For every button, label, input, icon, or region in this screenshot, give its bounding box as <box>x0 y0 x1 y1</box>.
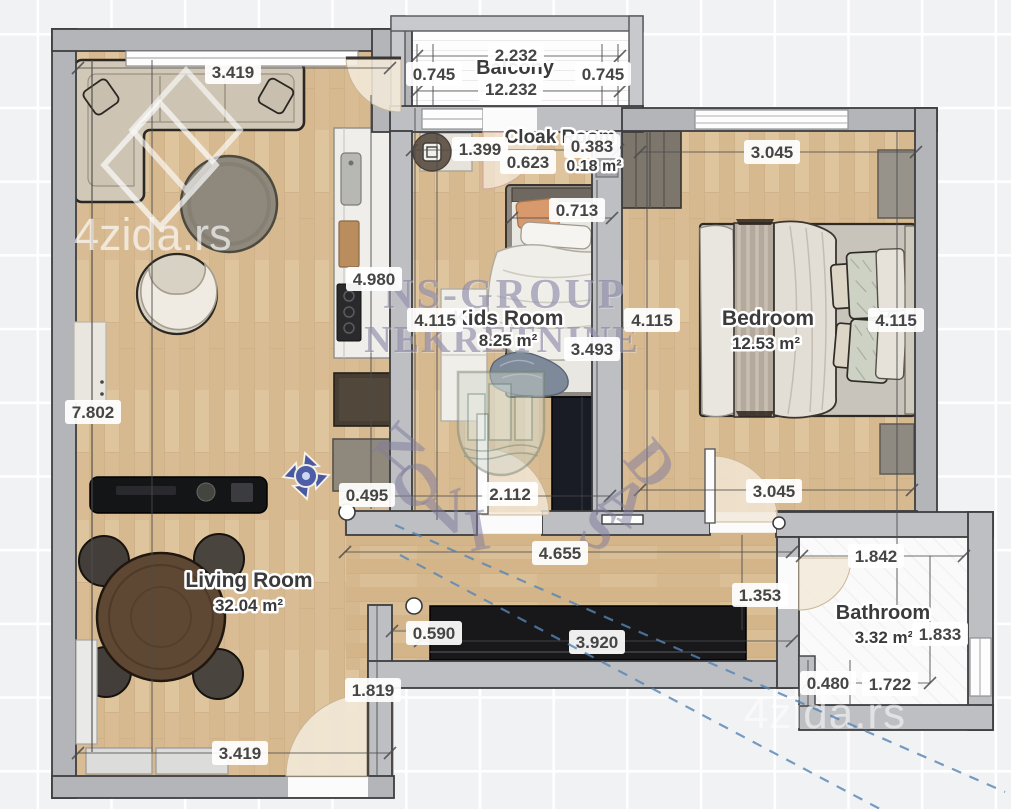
svg-text:3.493: 3.493 <box>571 340 614 359</box>
svg-text:12.232: 12.232 <box>485 80 537 99</box>
svg-text:2.232: 2.232 <box>495 46 538 65</box>
svg-text:1.722: 1.722 <box>869 675 912 694</box>
svg-text:3.920: 3.920 <box>576 633 619 652</box>
svg-text:1.819: 1.819 <box>352 681 395 700</box>
svg-text:0.18 m²: 0.18 m² <box>566 158 621 175</box>
svg-text:0.623: 0.623 <box>507 153 550 172</box>
svg-text:3.32 m²: 3.32 m² <box>855 628 914 647</box>
svg-text:12.53 m²: 12.53 m² <box>732 334 800 353</box>
svg-text:1.399: 1.399 <box>459 140 502 159</box>
svg-text:4.115: 4.115 <box>875 311 917 330</box>
svg-text:8.25 m²: 8.25 m² <box>479 331 538 350</box>
svg-text:Kids Room: Kids Room <box>453 307 564 330</box>
svg-text:3.045: 3.045 <box>753 482 796 501</box>
svg-text:4.980: 4.980 <box>353 270 396 289</box>
svg-text:3.419: 3.419 <box>219 744 262 763</box>
svg-text:4.115: 4.115 <box>631 311 673 330</box>
svg-text:4zida.rs: 4zida.rs <box>74 209 232 260</box>
svg-text:0.590: 0.590 <box>413 624 456 643</box>
svg-text:3.419: 3.419 <box>212 63 255 82</box>
svg-text:0.745: 0.745 <box>582 65 625 84</box>
svg-text:0.495: 0.495 <box>346 486 389 505</box>
svg-text:7.802: 7.802 <box>72 403 115 422</box>
svg-text:0.745: 0.745 <box>413 65 456 84</box>
svg-text:4zida.rs: 4zida.rs <box>744 689 906 738</box>
svg-text:0.480: 0.480 <box>807 674 850 693</box>
svg-text:4.655: 4.655 <box>539 544 582 563</box>
svg-text:3.045: 3.045 <box>751 143 794 162</box>
svg-text:0.713: 0.713 <box>556 201 599 220</box>
svg-text:1.842: 1.842 <box>855 547 898 566</box>
svg-text:32.04 m²: 32.04 m² <box>215 596 283 615</box>
svg-text:Bedroom: Bedroom <box>722 307 814 330</box>
svg-text:1.353: 1.353 <box>739 586 782 605</box>
svg-text:Living Room: Living Room <box>185 569 312 592</box>
svg-text:1.833: 1.833 <box>919 625 962 644</box>
svg-text:Bathroom: Bathroom <box>836 602 930 624</box>
svg-text:4.115: 4.115 <box>414 311 456 330</box>
svg-text:0.383: 0.383 <box>571 137 614 156</box>
svg-text:2.112: 2.112 <box>489 485 531 504</box>
